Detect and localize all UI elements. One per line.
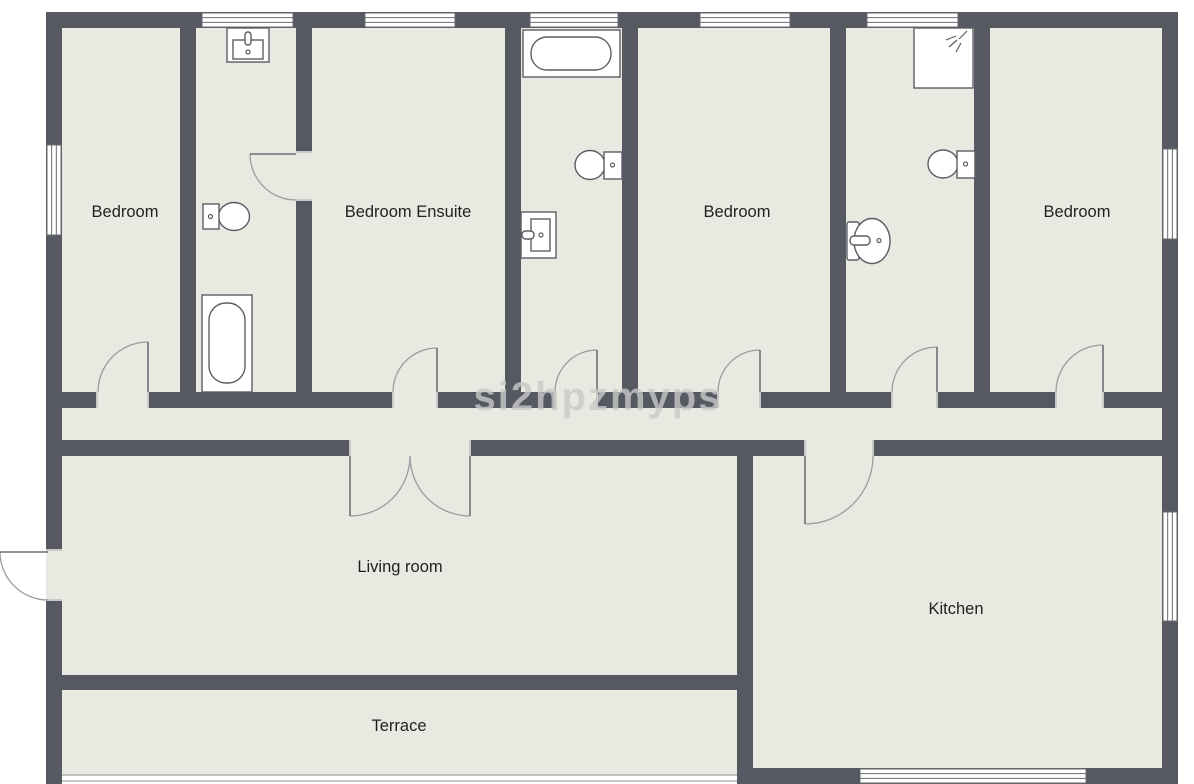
hallway-bottom-wall-seg3 (873, 440, 1162, 456)
window-right-kitchen (1163, 512, 1177, 621)
wall-bathroom3-bedroom4 (974, 28, 990, 392)
hallway-top-wall-seg1 (62, 392, 97, 408)
wall-bedroom1-bathroom1 (180, 28, 196, 392)
bathroom3-shower (914, 28, 973, 88)
gap-bedroom4-door (1056, 392, 1103, 408)
bathroom1-bathtub (209, 303, 245, 383)
hallway-bottom-wall-seg2 (470, 440, 805, 456)
room-label-kitchen: Kitchen (928, 600, 983, 618)
hallway-top-wall-seg5 (760, 392, 892, 408)
gap-bathroom1-door (296, 152, 312, 200)
watermark-text: si2hpzmyps (474, 375, 723, 419)
window-bottom-kitchen (860, 769, 1086, 783)
bathroom1-toilet (209, 215, 213, 219)
bathroom2-sink (522, 231, 534, 239)
room-label-bedroom-4: Bedroom (1044, 203, 1111, 221)
bathroom3-toilet (964, 162, 968, 166)
wall-bathroom2-bedroom3 (622, 28, 638, 392)
gap-living-door (350, 440, 470, 456)
bathroom1-toilet (219, 203, 250, 231)
bathroom1-sink (245, 32, 251, 45)
bathroom2-bathtub (531, 37, 611, 70)
room-label-bedroom-1: Bedroom (92, 203, 159, 221)
gap-kitchen-door (805, 440, 873, 456)
bathroom3-sink (877, 239, 881, 243)
wall-bathroom1-ensuite-upper (296, 28, 312, 152)
floor-plan-canvas: BedroomBedroom EnsuiteBedroomBedroomLivi… (0, 0, 1194, 784)
wall-ensuite-bathroom2 (505, 28, 521, 392)
gap-bathroom3-door (892, 392, 937, 408)
floor-plan-page: BedroomBedroom EnsuiteBedroomBedroomLivi… (0, 0, 1194, 784)
window-left-bedroom1 (47, 145, 61, 235)
bathroom3-sink (850, 236, 870, 245)
window-top-bathroom3 (867, 13, 958, 27)
room-label-terrace: Terrace (371, 717, 426, 735)
wall-living-kitchen (737, 456, 753, 768)
bathroom2-toilet (611, 163, 615, 167)
window-right-bedroom4 (1163, 149, 1177, 239)
bathroom2-sink (539, 233, 543, 237)
bathroom3-toilet (928, 150, 958, 178)
bathroom1-sink (246, 50, 250, 54)
hallway-top-wall-seg2 (148, 392, 393, 408)
wall-bedroom3-bathroom3 (830, 28, 846, 392)
window-top-bathroom1 (202, 13, 293, 27)
wall-living-terrace (62, 675, 737, 690)
gap-front-door (46, 550, 62, 600)
window-top-bathroom2 (530, 13, 618, 27)
exterior-right-wall (1162, 12, 1178, 784)
window-top-bedroom3 (700, 13, 790, 27)
exterior-left-wall-lower (46, 600, 62, 784)
front-door-swing-arc (0, 552, 48, 600)
gap-bedroom3-door (718, 392, 760, 408)
gap-bedroom1-door (97, 392, 148, 408)
exterior-left-wall-upper (46, 12, 62, 550)
hallway-top-wall-seg7 (1103, 392, 1162, 408)
gap-ensuite-door (393, 392, 437, 408)
window-top-ensuite (365, 13, 455, 27)
hallway-bottom-wall-seg1 (62, 440, 350, 456)
wall-bathroom1-ensuite-lower (296, 200, 312, 392)
room-label-bedroom-3: Bedroom (704, 203, 771, 221)
room-label-living-room: Living room (357, 558, 442, 576)
hallway-top-wall-seg6 (937, 392, 1056, 408)
room-label-bedroom-ensuite: Bedroom Ensuite (345, 203, 472, 221)
bathroom2-toilet (575, 151, 605, 180)
